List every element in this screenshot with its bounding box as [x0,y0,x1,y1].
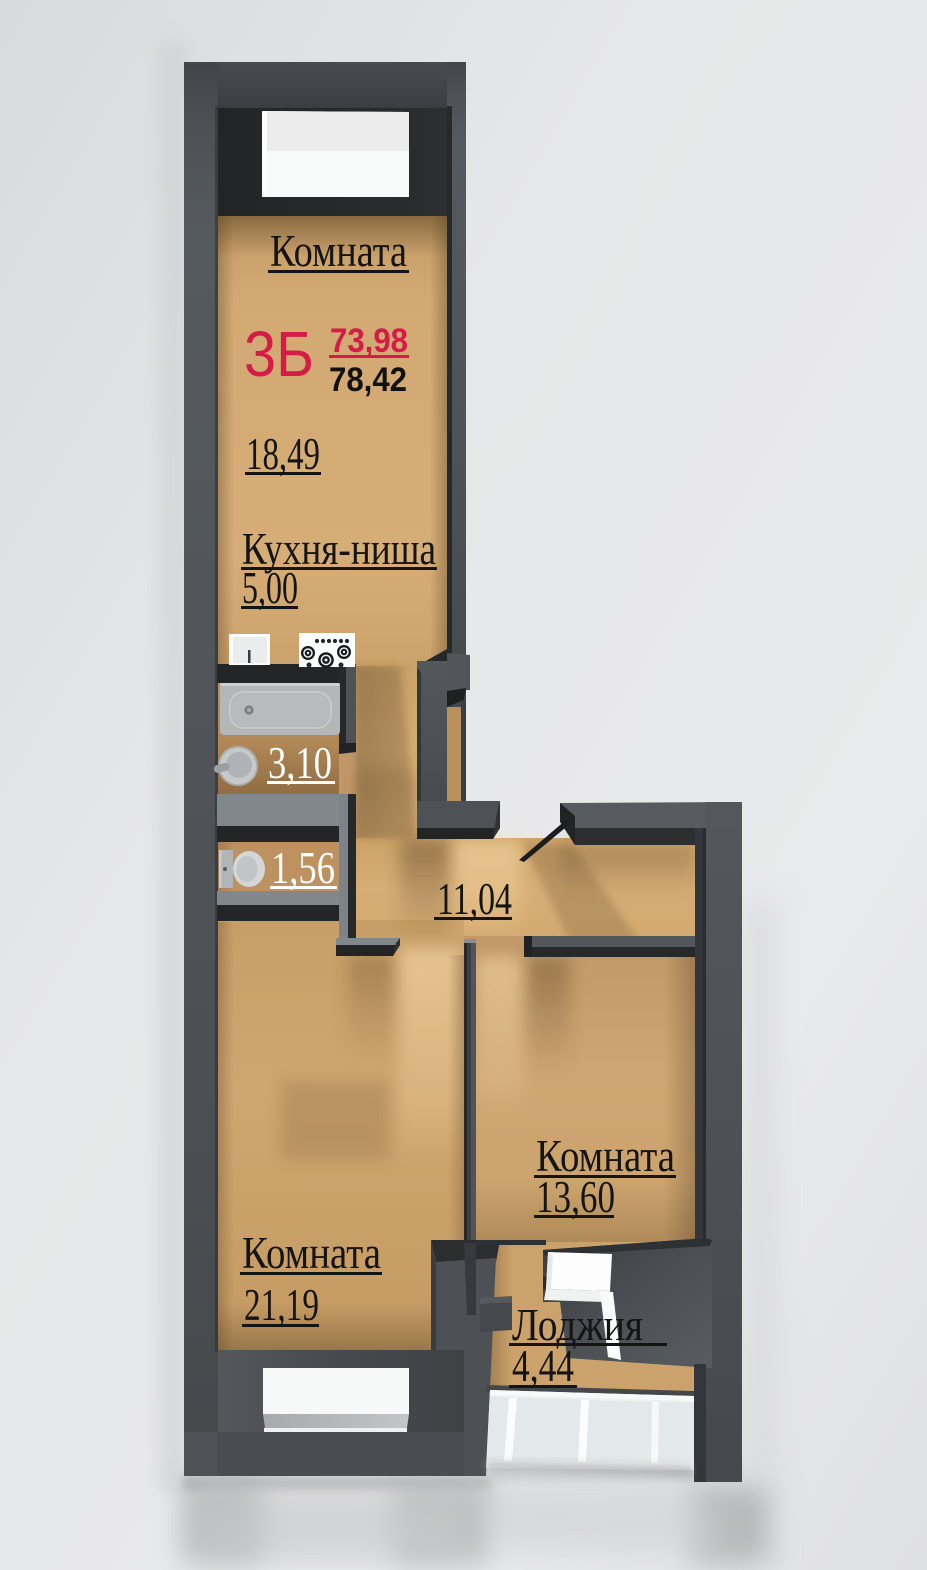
svg-text:Комната: Комната [270,226,407,276]
svg-text:3Б: 3Б [244,318,314,390]
svg-text:1,56: 1,56 [271,843,335,893]
svg-text:3,10: 3,10 [268,738,332,788]
svg-text:78,42: 78,42 [329,361,407,399]
svg-text:4,44: 4,44 [512,1341,574,1391]
svg-text:73,98: 73,98 [330,322,408,360]
svg-text:18,49: 18,49 [246,429,320,479]
svg-text:11,04: 11,04 [437,874,512,924]
svg-text:5,00: 5,00 [242,563,298,613]
svg-text:21,19: 21,19 [244,1280,319,1330]
svg-text:Комната: Комната [242,1228,381,1278]
svg-text:13,60: 13,60 [536,1172,615,1222]
